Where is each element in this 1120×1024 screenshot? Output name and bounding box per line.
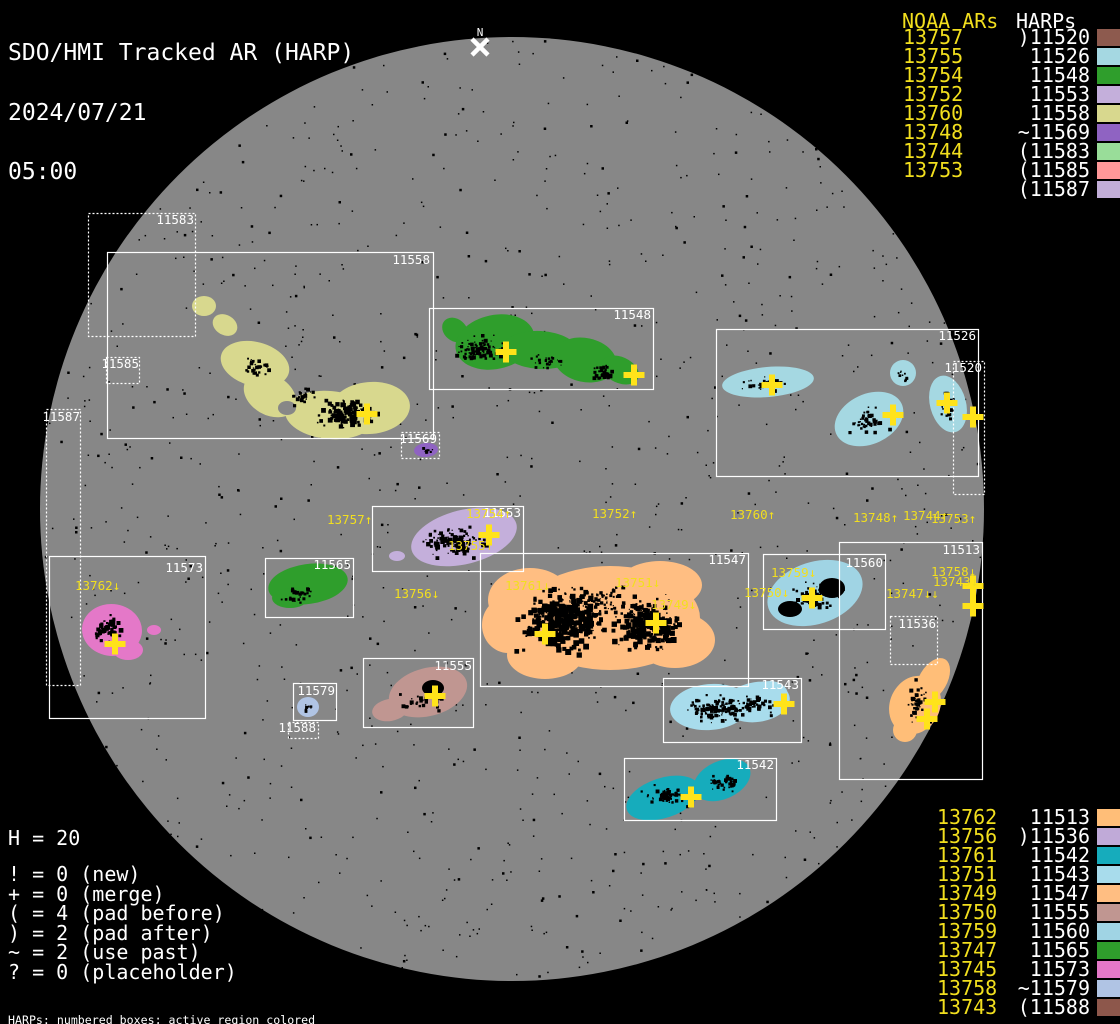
magnetic-speckle bbox=[582, 956, 584, 958]
umbra-speckle bbox=[545, 619, 546, 620]
magnetic-speckle bbox=[761, 304, 763, 306]
magnetic-speckle bbox=[288, 857, 290, 859]
magnetic-speckle bbox=[836, 517, 839, 520]
umbra-speckle bbox=[718, 700, 721, 703]
magnetic-speckle bbox=[703, 853, 705, 855]
umbra-speckle bbox=[675, 616, 678, 619]
umbra-speckle bbox=[763, 704, 765, 706]
umbra-speckle bbox=[601, 374, 604, 377]
noaa-ar-label: 13762↓ bbox=[75, 578, 120, 593]
umbra-speckle bbox=[567, 631, 569, 633]
umbra-speckle bbox=[539, 616, 541, 618]
umbra-speckle bbox=[103, 621, 104, 622]
umbra-speckle bbox=[913, 707, 916, 710]
umbra-speckle bbox=[923, 694, 924, 695]
umbra-speckle bbox=[863, 424, 865, 426]
harp-box-label-11536: 11536 bbox=[898, 616, 936, 631]
magnetic-speckle bbox=[563, 283, 565, 285]
magnetic-speckle bbox=[601, 562, 603, 564]
magnetic-speckle bbox=[607, 228, 609, 230]
magnetic-speckle bbox=[843, 206, 845, 208]
umbra-speckle bbox=[459, 346, 460, 347]
umbra-speckle bbox=[669, 797, 671, 799]
magnetic-speckle bbox=[473, 929, 475, 931]
magnetic-speckle bbox=[446, 483, 448, 485]
umbra-speckle bbox=[600, 369, 603, 372]
magnetic-speckle bbox=[84, 400, 86, 402]
magnetic-speckle bbox=[558, 895, 561, 898]
umbra-speckle bbox=[258, 371, 260, 373]
magnetic-speckle bbox=[612, 870, 615, 873]
magnetic-speckle bbox=[391, 685, 393, 687]
magnetic-speckle bbox=[760, 114, 762, 116]
magnetic-speckle bbox=[383, 65, 385, 67]
magnetic-speckle bbox=[681, 891, 683, 893]
magnetic-speckle bbox=[396, 483, 399, 486]
noaa-ar-label: 13756↓ bbox=[394, 586, 439, 601]
harp-box-label-11548: 11548 bbox=[613, 307, 651, 322]
magnetic-speckle bbox=[669, 558, 671, 560]
magnetic-speckle bbox=[855, 692, 858, 695]
magnetic-speckle bbox=[597, 701, 599, 703]
magnetic-speckle bbox=[166, 759, 168, 761]
umbra-speckle bbox=[499, 355, 503, 359]
magnetic-speckle bbox=[822, 283, 824, 285]
umbra-speckle bbox=[436, 549, 438, 551]
magnetic-speckle bbox=[599, 546, 601, 548]
active-region-blob-11553 bbox=[389, 551, 405, 561]
umbra-speckle bbox=[905, 377, 908, 380]
umbra-speckle bbox=[904, 380, 906, 382]
umbra-speckle bbox=[588, 616, 589, 617]
umbra-speckle bbox=[563, 636, 567, 640]
magnetic-speckle bbox=[520, 455, 522, 457]
magnetic-speckle bbox=[167, 820, 169, 822]
umbra-speckle bbox=[821, 590, 823, 592]
harp-color-swatch bbox=[1097, 809, 1120, 826]
umbra-speckle bbox=[634, 646, 637, 649]
umbra-speckle bbox=[335, 402, 339, 406]
magnetic-speckle bbox=[809, 679, 812, 682]
magnetic-speckle bbox=[909, 326, 911, 328]
magnetic-speckle bbox=[939, 605, 941, 607]
umbra-speckle bbox=[255, 364, 256, 365]
umbra-speckle bbox=[606, 594, 608, 596]
magnetic-speckle bbox=[462, 108, 465, 111]
magnetic-speckle bbox=[303, 286, 305, 288]
umbra-speckle bbox=[668, 790, 671, 793]
umbra-speckle bbox=[873, 431, 877, 435]
umbra-speckle bbox=[570, 602, 571, 603]
magnetic-speckle bbox=[911, 302, 913, 304]
magnetic-speckle bbox=[581, 950, 584, 953]
magnetic-speckle bbox=[533, 835, 535, 837]
magnetic-speckle bbox=[551, 422, 554, 425]
magnetic-speckle bbox=[254, 853, 256, 855]
magnetic-speckle bbox=[414, 498, 416, 500]
blob-hole bbox=[278, 401, 296, 415]
magnetic-speckle bbox=[337, 466, 340, 469]
magnetic-speckle bbox=[537, 692, 539, 694]
legend-top-rows: 13757)1152013755115261375411548137521155… bbox=[890, 28, 1120, 199]
magnetic-speckle bbox=[544, 180, 546, 182]
magnetic-speckle bbox=[743, 256, 746, 259]
umbra-speckle bbox=[910, 714, 913, 717]
umbra-speckle bbox=[753, 705, 756, 708]
magnetic-speckle bbox=[641, 253, 643, 255]
magnetic-speckle bbox=[221, 496, 224, 499]
umbra-speckle bbox=[523, 630, 527, 634]
umbra-speckle bbox=[608, 608, 609, 609]
umbra-speckle bbox=[318, 414, 320, 416]
umbra-speckle bbox=[472, 556, 476, 560]
magnetic-speckle bbox=[309, 837, 312, 840]
magnetic-speckle bbox=[243, 643, 245, 645]
magnetic-speckle bbox=[929, 321, 931, 323]
active-region-blob-11573 bbox=[147, 625, 161, 635]
magnetic-speckle bbox=[625, 710, 627, 712]
umbra-speckle bbox=[329, 410, 331, 412]
umbra-speckle bbox=[114, 625, 117, 628]
umbra-speckle bbox=[436, 556, 440, 560]
umbra-speckle bbox=[549, 364, 551, 366]
magnetic-speckle bbox=[227, 569, 230, 572]
magnetic-speckle bbox=[641, 932, 643, 934]
magnetic-speckle bbox=[613, 71, 615, 73]
magnetic-speckle bbox=[917, 485, 919, 487]
magnetic-speckle bbox=[180, 457, 183, 460]
umbra-speckle bbox=[721, 714, 722, 715]
umbra-speckle bbox=[542, 615, 545, 618]
magnetic-speckle bbox=[751, 112, 753, 114]
magnetic-speckle bbox=[689, 559, 691, 561]
magnetic-speckle bbox=[680, 854, 682, 856]
umbra-speckle bbox=[540, 619, 542, 621]
umbra-speckle bbox=[555, 615, 560, 620]
active-region-blob-11513 bbox=[893, 718, 917, 742]
umbra-speckle bbox=[253, 367, 254, 368]
magnetic-speckle bbox=[513, 122, 515, 124]
magnetic-speckle bbox=[891, 626, 893, 628]
magnetic-speckle bbox=[821, 674, 823, 676]
noaa-ar-label: 13750↓ bbox=[744, 585, 789, 600]
magnetic-speckle bbox=[566, 752, 568, 754]
magnetic-speckle bbox=[642, 863, 645, 866]
magnetic-speckle bbox=[812, 666, 814, 668]
umbra-speckle bbox=[756, 704, 758, 706]
magnetic-speckle bbox=[127, 449, 129, 451]
magnetic-speckle bbox=[615, 544, 618, 547]
magnetic-speckle bbox=[750, 246, 753, 249]
umbra-speckle bbox=[604, 376, 607, 379]
magnetic-speckle bbox=[736, 134, 738, 136]
umbra-speckle bbox=[573, 588, 575, 590]
magnetic-speckle bbox=[458, 878, 461, 881]
harp-box-label-11542: 11542 bbox=[736, 757, 774, 772]
umbra-speckle bbox=[861, 417, 864, 420]
magnetic-speckle bbox=[94, 595, 96, 597]
magnetic-speckle bbox=[893, 233, 895, 235]
magnetic-speckle bbox=[305, 828, 307, 830]
magnetic-speckle bbox=[488, 387, 490, 389]
magnetic-speckle bbox=[739, 315, 742, 318]
umbra-speckle bbox=[794, 602, 797, 605]
umbra-speckle bbox=[669, 802, 671, 804]
magnetic-speckle bbox=[280, 550, 283, 553]
magnetic-speckle bbox=[786, 187, 788, 189]
umbra-speckle bbox=[665, 594, 666, 595]
umbra-speckle bbox=[475, 354, 476, 355]
magnetic-speckle bbox=[739, 916, 741, 918]
north-label: N bbox=[477, 26, 484, 39]
umbra-speckle bbox=[751, 699, 752, 700]
umbra-speckle bbox=[342, 403, 346, 407]
umbra-speckle bbox=[600, 603, 601, 604]
magnetic-speckle bbox=[756, 362, 758, 364]
magnetic-speckle bbox=[270, 632, 272, 634]
magnetic-speckle bbox=[406, 960, 408, 962]
magnetic-speckle bbox=[539, 871, 541, 873]
magnetic-speckle bbox=[371, 725, 373, 727]
symbol-legend-line: ? = 0 (placeholder) bbox=[8, 963, 237, 983]
magnetic-speckle bbox=[496, 405, 498, 407]
magnetic-speckle bbox=[675, 227, 678, 230]
magnetic-speckle bbox=[591, 880, 593, 882]
magnetic-speckle bbox=[789, 276, 792, 279]
harp-color-swatch bbox=[1097, 48, 1120, 65]
umbra-speckle bbox=[647, 644, 651, 648]
magnetic-speckle bbox=[711, 398, 713, 400]
magnetic-speckle bbox=[616, 56, 618, 58]
magnetic-speckle bbox=[853, 679, 856, 682]
umbra-speckle bbox=[410, 703, 412, 705]
magnetic-speckle bbox=[193, 271, 195, 273]
umbra-speckle bbox=[467, 348, 470, 351]
magnetic-speckle bbox=[109, 429, 111, 431]
magnetic-speckle bbox=[332, 315, 334, 317]
magnetic-speckle bbox=[293, 912, 295, 914]
umbra-speckle bbox=[267, 365, 269, 367]
umbra-speckle bbox=[300, 398, 304, 402]
magnetic-speckle bbox=[244, 732, 247, 735]
magnetic-speckle bbox=[602, 167, 605, 170]
magnetic-speckle bbox=[84, 406, 86, 408]
magnetic-speckle bbox=[839, 266, 841, 268]
magnetic-speckle bbox=[425, 925, 427, 927]
umbra-speckle bbox=[725, 781, 727, 783]
magnetic-speckle bbox=[505, 481, 507, 483]
magnetic-speckle bbox=[507, 250, 509, 252]
magnetic-speckle bbox=[595, 692, 597, 694]
magnetic-speckle bbox=[111, 330, 113, 332]
magnetic-speckle bbox=[854, 667, 856, 669]
umbra-speckle bbox=[653, 636, 656, 639]
umbra-speckle bbox=[596, 367, 598, 369]
magnetic-speckle bbox=[496, 473, 499, 476]
umbra-speckle bbox=[625, 619, 630, 624]
umbra-speckle bbox=[710, 713, 713, 716]
umbra-speckle bbox=[370, 420, 374, 424]
umbra-speckle bbox=[337, 411, 339, 413]
magnetic-speckle bbox=[635, 484, 637, 486]
umbra-speckle bbox=[485, 357, 488, 360]
magnetic-speckle bbox=[660, 359, 662, 361]
magnetic-speckle bbox=[184, 234, 187, 237]
umbra-speckle bbox=[698, 700, 701, 703]
umbra-speckle bbox=[576, 613, 579, 616]
magnetic-speckle bbox=[340, 669, 343, 672]
umbra-speckle bbox=[687, 709, 688, 710]
magnetic-speckle bbox=[569, 773, 571, 775]
magnetic-speckle bbox=[637, 673, 640, 676]
magnetic-speckle bbox=[609, 885, 611, 887]
magnetic-speckle bbox=[89, 367, 91, 369]
magnetic-speckle bbox=[747, 351, 749, 353]
umbra-speckle bbox=[117, 621, 121, 625]
umbra-speckle bbox=[458, 352, 460, 354]
umbra-speckle bbox=[594, 367, 596, 369]
magnetic-speckle bbox=[679, 367, 681, 369]
umbra-speckle bbox=[593, 630, 594, 631]
umbra-speckle bbox=[254, 371, 257, 374]
magnetic-speckle bbox=[690, 357, 692, 359]
magnetic-speckle bbox=[254, 268, 256, 270]
harp-color-swatch bbox=[1097, 828, 1120, 845]
magnetic-speckle bbox=[793, 240, 795, 242]
magnetic-speckle bbox=[485, 260, 488, 263]
magnetic-speckle bbox=[716, 128, 718, 130]
magnetic-speckle bbox=[251, 589, 253, 591]
magnetic-speckle bbox=[519, 495, 521, 497]
magnetic-speckle bbox=[453, 763, 456, 766]
umbra-speckle bbox=[586, 612, 587, 613]
magnetic-speckle bbox=[874, 578, 876, 580]
magnetic-speckle bbox=[367, 895, 369, 897]
umbra-speckle bbox=[584, 632, 588, 636]
magnetic-speckle bbox=[927, 340, 929, 342]
plot-title: SDO/HMI Tracked AR (HARP) 2024/07/21 05:… bbox=[8, 5, 354, 222]
magnetic-speckle bbox=[397, 731, 399, 733]
umbra-speckle bbox=[578, 649, 581, 652]
magnetic-speckle bbox=[127, 530, 129, 532]
magnetic-speckle bbox=[380, 313, 382, 315]
magnetic-speckle bbox=[227, 584, 229, 586]
umbra-speckle bbox=[591, 612, 594, 615]
magnetic-speckle bbox=[264, 260, 266, 262]
umbra-speckle bbox=[712, 704, 713, 705]
magnetic-speckle bbox=[837, 822, 839, 824]
magnetic-speckle bbox=[396, 235, 398, 237]
magnetic-speckle bbox=[724, 660, 726, 662]
harp-box-label-11526: 11526 bbox=[938, 328, 976, 343]
umbra-speckle bbox=[343, 407, 346, 410]
umbra-speckle bbox=[319, 419, 323, 423]
magnetic-speckle bbox=[417, 336, 419, 338]
umbra-speckle bbox=[314, 396, 316, 398]
magnetic-speckle bbox=[897, 479, 899, 481]
magnetic-speckle bbox=[212, 235, 214, 237]
umbra-speckle bbox=[611, 608, 613, 610]
umbra-speckle bbox=[820, 591, 823, 594]
magnetic-speckle bbox=[619, 920, 622, 923]
magnetic-speckle bbox=[630, 910, 632, 912]
magnetic-speckle bbox=[549, 730, 551, 732]
umbra-speckle bbox=[748, 384, 752, 388]
magnetic-speckle bbox=[222, 782, 225, 785]
magnetic-speckle bbox=[676, 165, 678, 167]
umbra-speckle bbox=[717, 786, 720, 789]
umbra-speckle bbox=[642, 604, 644, 606]
umbra-speckle bbox=[339, 424, 343, 428]
magnetic-speckle bbox=[531, 926, 533, 928]
magnetic-speckle bbox=[952, 621, 954, 623]
umbra-speckle bbox=[603, 595, 605, 597]
magnetic-speckle bbox=[333, 336, 336, 339]
umbra-speckle bbox=[912, 704, 914, 706]
magnetic-speckle bbox=[710, 836, 712, 838]
umbra-speckle bbox=[749, 702, 750, 703]
umbra-speckle bbox=[577, 652, 582, 657]
magnetic-speckle bbox=[387, 524, 389, 526]
umbra-speckle bbox=[485, 353, 486, 354]
magnetic-speckle bbox=[192, 231, 194, 233]
magnetic-speckle bbox=[900, 548, 903, 551]
magnetic-speckle bbox=[748, 283, 750, 285]
magnetic-speckle bbox=[337, 731, 339, 733]
umbra-speckle bbox=[606, 601, 607, 602]
umbra-speckle bbox=[899, 374, 902, 377]
umbra-speckle bbox=[434, 530, 437, 533]
magnetic-speckle bbox=[587, 800, 589, 802]
umbra-speckle bbox=[291, 589, 295, 593]
magnetic-speckle bbox=[407, 832, 409, 834]
magnetic-speckle bbox=[112, 692, 114, 694]
magnetic-speckle bbox=[203, 283, 205, 285]
umbra-speckle bbox=[707, 716, 710, 719]
magnetic-speckle bbox=[541, 858, 543, 860]
harp-color-swatch bbox=[1097, 980, 1120, 997]
magnetic-speckle bbox=[678, 529, 680, 531]
umbra-speckle bbox=[563, 617, 568, 622]
magnetic-speckle bbox=[414, 606, 417, 609]
magnetic-speckle bbox=[238, 808, 240, 810]
umbra-speckle bbox=[719, 715, 720, 716]
magnetic-speckle bbox=[604, 786, 606, 788]
magnetic-speckle bbox=[321, 837, 323, 839]
umbra-speckle bbox=[108, 631, 111, 634]
magnetic-speckle bbox=[238, 490, 240, 492]
umbra-speckle bbox=[711, 779, 712, 780]
magnetic-speckle bbox=[844, 524, 846, 526]
magnetic-speckle bbox=[803, 737, 805, 739]
magnetic-speckle bbox=[451, 619, 453, 621]
umbra-speckle bbox=[734, 718, 736, 720]
magnetic-speckle bbox=[390, 447, 392, 449]
magnetic-speckle bbox=[662, 255, 664, 257]
noaa-ar-label: 13753↑ bbox=[931, 511, 976, 526]
harp-box-label-11547: 11547 bbox=[708, 552, 746, 567]
umbra-speckle bbox=[700, 708, 704, 712]
magnetic-speckle bbox=[485, 769, 487, 771]
umbra-speckle bbox=[106, 622, 108, 624]
magnetic-speckle bbox=[714, 893, 716, 895]
umbra-speckle bbox=[711, 711, 713, 713]
umbra-speckle bbox=[429, 533, 432, 536]
magnetic-speckle bbox=[627, 120, 629, 122]
magnetic-speckle bbox=[810, 831, 812, 833]
magnetic-speckle bbox=[762, 314, 764, 316]
umbra-speckle bbox=[662, 800, 664, 802]
